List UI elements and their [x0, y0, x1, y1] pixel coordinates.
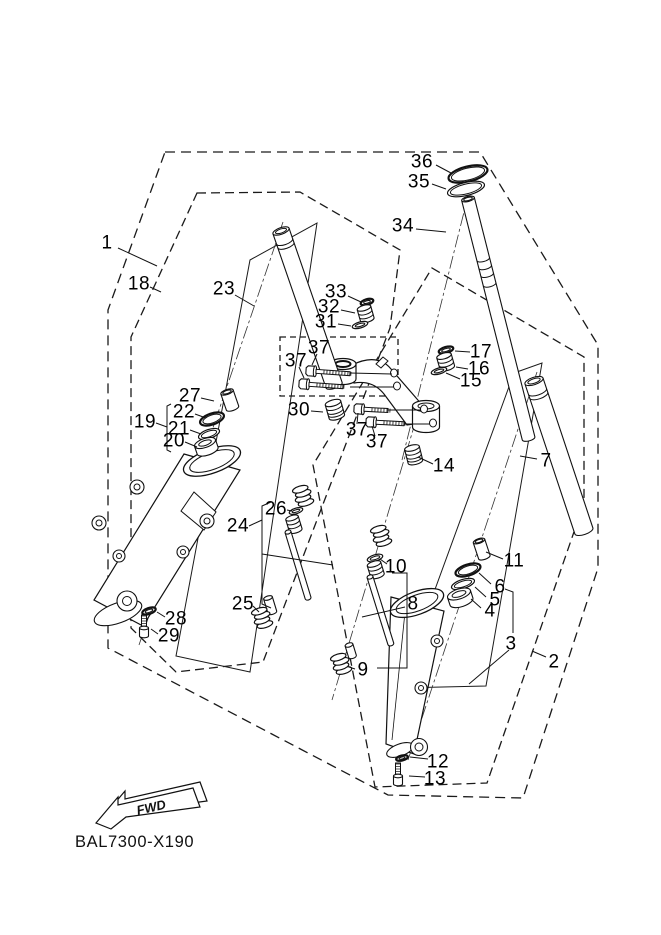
washer-31 [351, 320, 368, 330]
drawing-code: BAL7300-X190 [75, 833, 194, 851]
leader-33 [348, 296, 361, 302]
rod-tip-8 [345, 642, 357, 660]
callout-7: 7 [540, 452, 551, 471]
diagram-art: FWD BAL7300-X190 [0, 0, 661, 935]
callout-23: 23 [213, 280, 235, 299]
callout-9: 9 [357, 661, 368, 680]
leader-15 [446, 373, 460, 379]
leader-35 [432, 184, 446, 189]
callout-34: 34 [392, 217, 414, 236]
leader-36 [436, 165, 451, 173]
callout-19: 19 [134, 413, 156, 432]
leader-18 [150, 287, 161, 292]
leader-16 [456, 367, 468, 369]
drain-bolt-13 [394, 763, 403, 786]
callout-3: 3 [505, 635, 516, 654]
callout-36: 36 [411, 153, 433, 172]
callout-11: 11 [504, 552, 525, 571]
spring-end-10 [370, 523, 393, 548]
damper-rod-24 [285, 529, 312, 601]
leader-31 [338, 324, 351, 326]
callout-37: 37 [308, 339, 330, 358]
callout-37: 37 [346, 421, 368, 440]
callout-37: 37 [285, 352, 307, 371]
leader-12 [410, 757, 428, 759]
callout-26: 26 [265, 500, 287, 519]
leader-19 [156, 423, 167, 427]
ribbed-cap-14 [404, 443, 423, 466]
callout-35: 35 [408, 173, 430, 192]
callout-29: 29 [158, 627, 180, 646]
callout-30: 30 [288, 401, 310, 420]
callout-13: 13 [424, 770, 446, 789]
leader-2 [532, 651, 546, 657]
callout-14: 14 [433, 457, 455, 476]
leader-28 [157, 612, 165, 617]
spring-end-24 [292, 483, 315, 508]
leader-21 [190, 430, 201, 434]
flange-bolt-37d [366, 416, 406, 429]
callout-8: 8 [407, 595, 418, 614]
leader-13 [409, 776, 425, 777]
callout-24: 24 [227, 517, 249, 536]
callout-20: 20 [163, 432, 185, 451]
callout-1: 1 [101, 234, 112, 253]
leader-1 [118, 248, 157, 266]
callout-10: 10 [385, 558, 407, 577]
leader-34 [416, 229, 446, 232]
o-ring-15 [430, 366, 447, 376]
leader-17 [455, 351, 470, 352]
leader-27 [201, 398, 214, 401]
fwd-arrow: FWD [96, 782, 207, 829]
callout-4: 4 [484, 602, 495, 621]
parts-diagram-stage: FWD BAL7300-X190 11823363534333231171615… [0, 0, 661, 935]
callout-25: 25 [232, 595, 254, 614]
callout-2: 2 [548, 653, 559, 672]
callout-31: 31 [315, 313, 337, 332]
leader-32 [341, 310, 355, 313]
callout-15: 15 [460, 372, 482, 391]
leader-30 [311, 411, 323, 412]
bracket-3-tie [505, 589, 513, 633]
callout-37: 37 [366, 433, 388, 452]
steering-stem-34 [461, 195, 535, 442]
ribbed-cap-30 [324, 398, 345, 422]
flange-bolt-37c [354, 403, 391, 416]
callout-18: 18 [128, 275, 150, 294]
